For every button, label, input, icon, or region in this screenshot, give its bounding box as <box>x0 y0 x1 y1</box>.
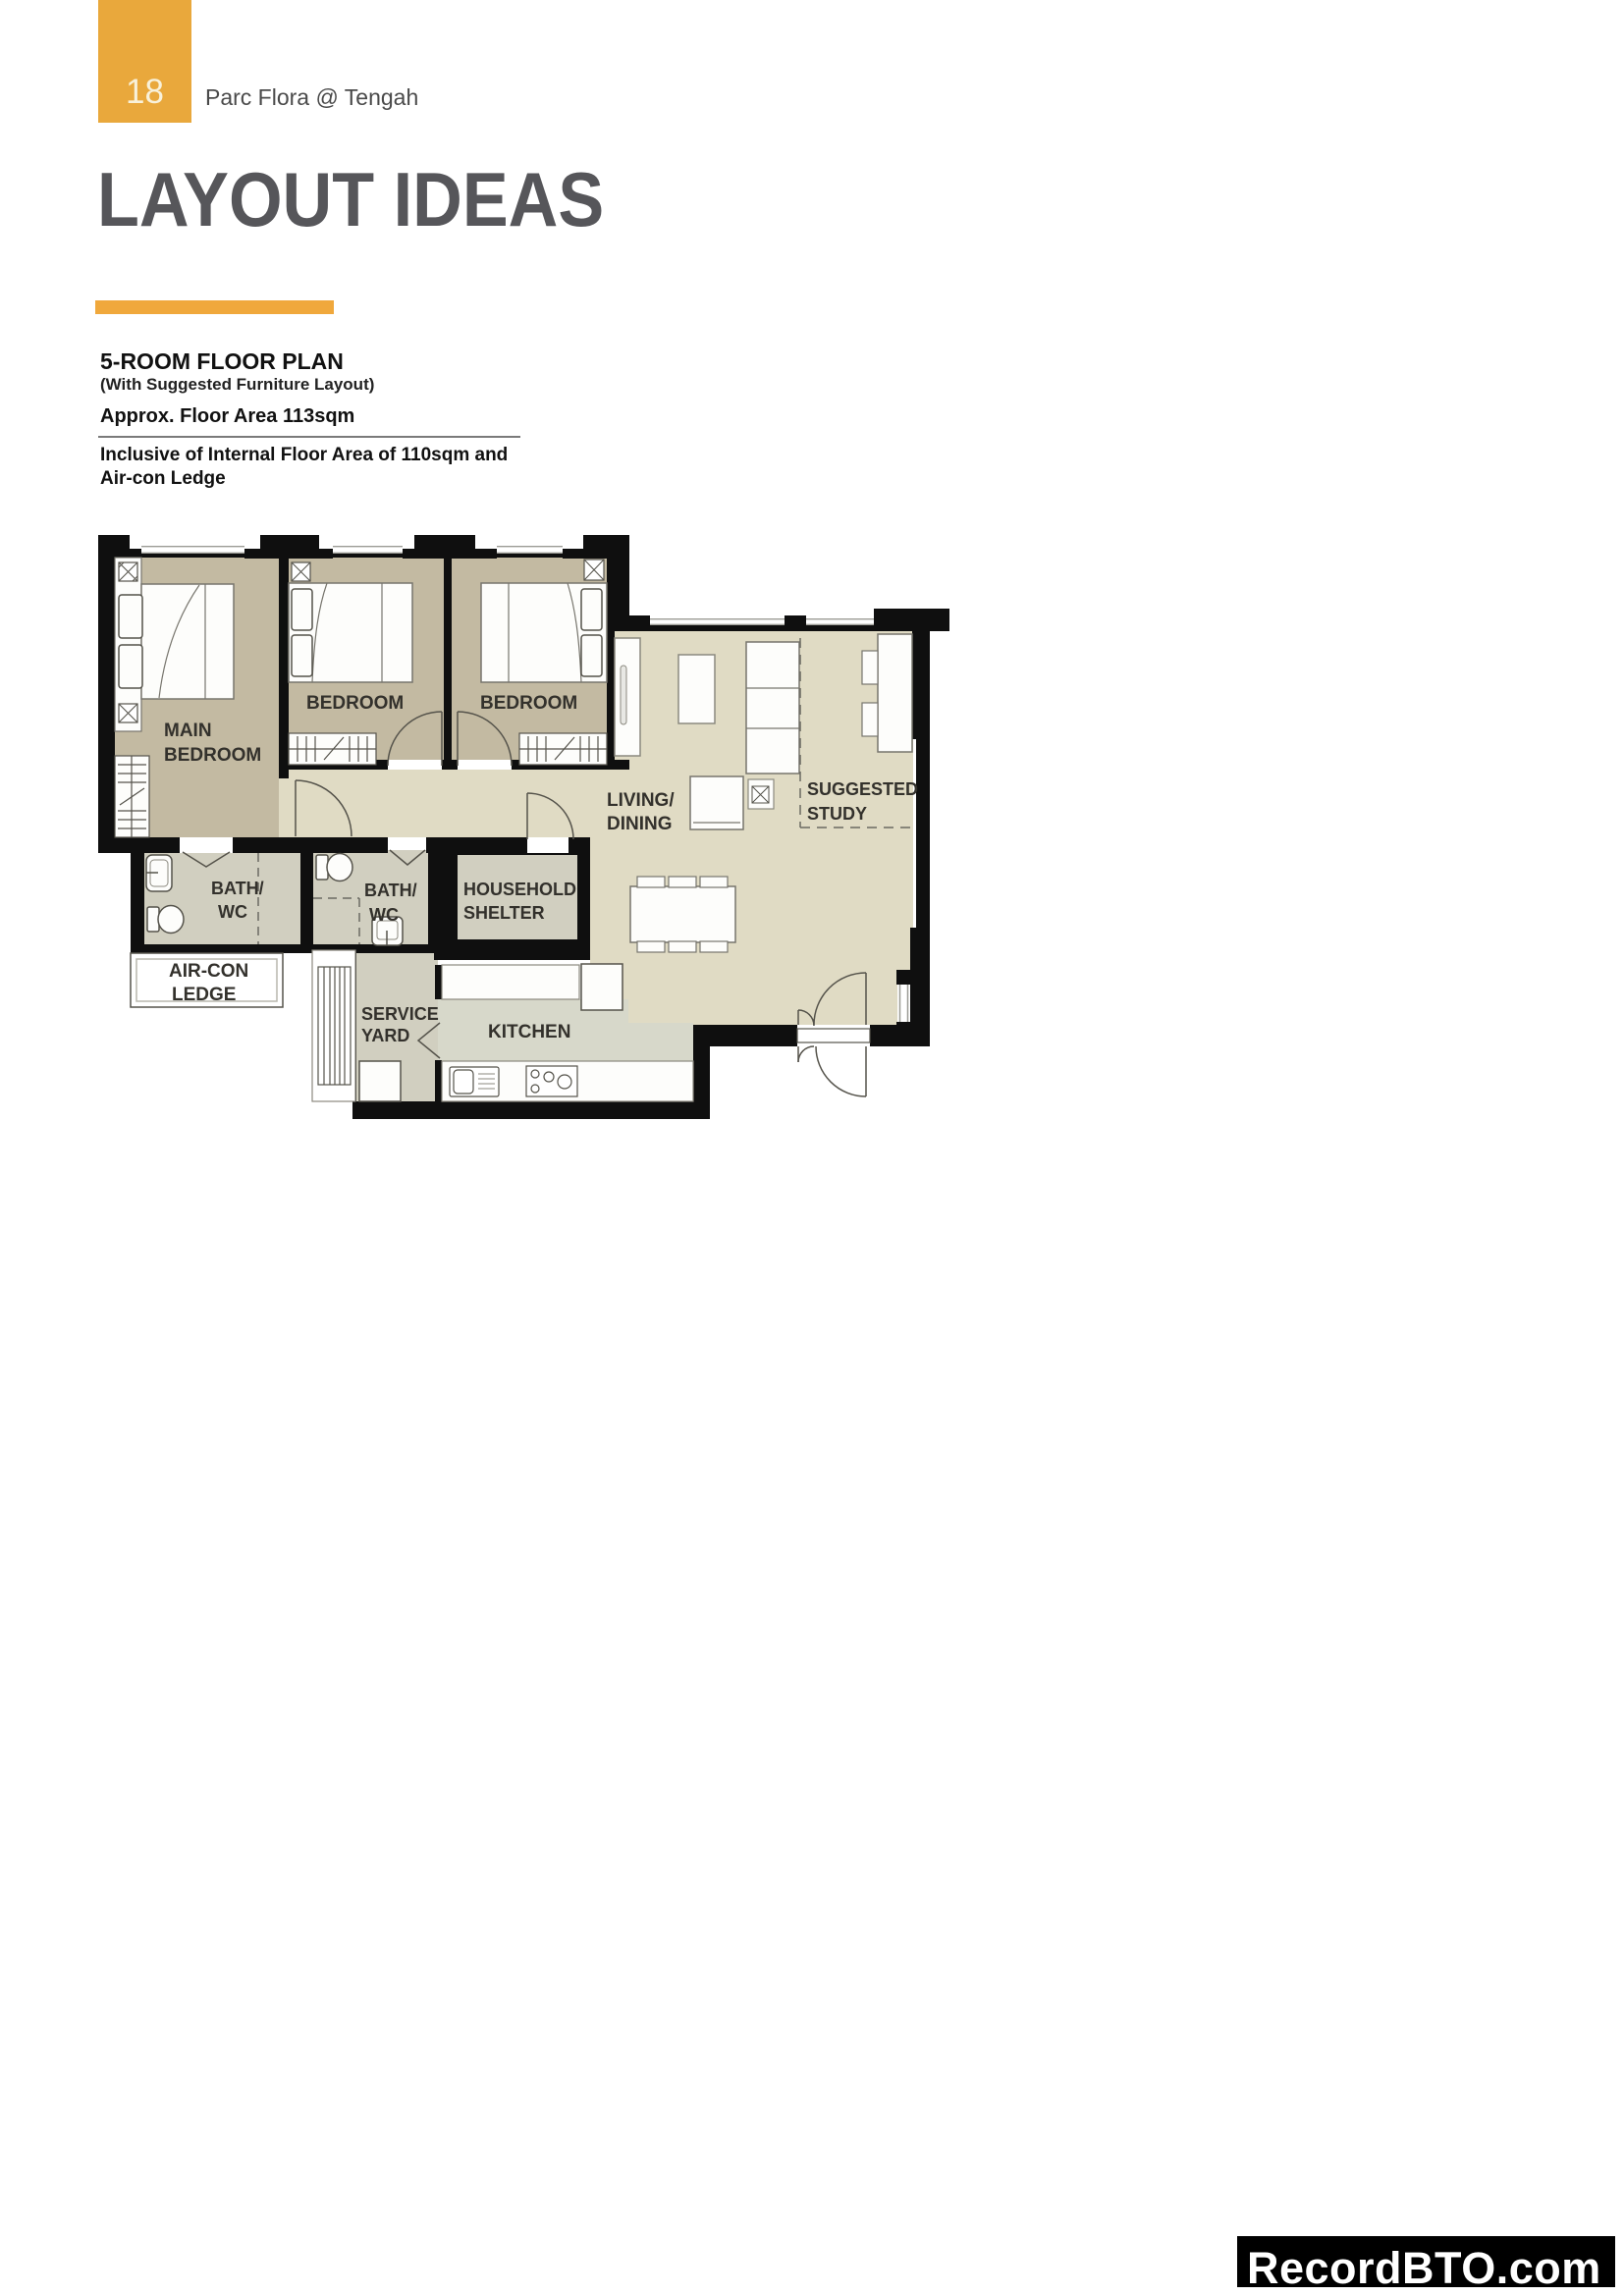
svg-text:STUDY: STUDY <box>807 804 867 824</box>
svg-text:KITCHEN: KITCHEN <box>488 1022 570 1042</box>
svg-text:SUGGESTED: SUGGESTED <box>807 779 918 799</box>
svg-text:MAIN: MAIN <box>164 721 212 741</box>
svg-text:AIR-CON: AIR-CON <box>169 961 248 982</box>
svg-text:LIVING/: LIVING/ <box>607 790 675 811</box>
svg-text:SERVICE: SERVICE <box>361 1004 439 1024</box>
svg-text:BATH/: BATH/ <box>211 879 264 898</box>
svg-text:DINING: DINING <box>607 814 673 834</box>
svg-text:BATH/: BATH/ <box>364 881 417 900</box>
svg-text:HOUSEHOLD: HOUSEHOLD <box>463 880 576 899</box>
svg-text:WC: WC <box>218 902 247 922</box>
svg-text:BEDROOM: BEDROOM <box>306 693 404 714</box>
svg-text:BEDROOM: BEDROOM <box>480 693 577 714</box>
svg-text:BEDROOM: BEDROOM <box>164 745 261 766</box>
svg-text:SHELTER: SHELTER <box>463 903 545 923</box>
svg-text:WC: WC <box>369 905 399 925</box>
svg-text:LEDGE: LEDGE <box>172 985 236 1005</box>
svg-text:YARD: YARD <box>361 1026 409 1045</box>
